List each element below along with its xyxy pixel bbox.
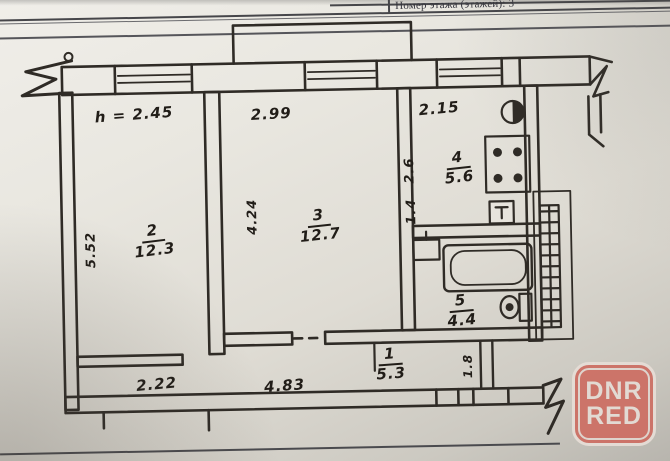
dnr-red-watermark: DNR RED <box>572 362 656 446</box>
bathtub-icon <box>443 244 532 292</box>
corridor-area: 5.3 <box>376 364 407 383</box>
bathroom-label: 5 4.4 <box>445 292 478 330</box>
dim-kitchen-depth: 2.6 <box>402 157 418 183</box>
dim-corridor-length: 4.83 <box>264 375 306 396</box>
water-heater-icon <box>489 201 513 223</box>
balcony-outline <box>233 22 412 64</box>
window-glazing <box>118 68 500 83</box>
wall-corridor-left <box>224 332 292 345</box>
room-3-label: 3 12.7 <box>297 206 342 246</box>
wall-room2-bottom <box>77 355 182 367</box>
dim-room3-width: 2.99 <box>250 104 292 124</box>
wall-break-left-icon <box>21 53 73 96</box>
dim-room2-width: 2.22 <box>135 373 177 395</box>
dim-kitchen-width: 2.15 <box>418 98 460 120</box>
door-opening-dashed <box>294 338 323 339</box>
sink-icon <box>501 101 523 123</box>
staircase-icon <box>533 191 573 340</box>
dim-niche-depth: 1.4 <box>404 198 420 224</box>
kitchen-area: 5.6 <box>444 167 475 187</box>
dim-room2-depth: 5.52 <box>84 232 100 268</box>
wall-break-bottom-icon <box>543 379 564 433</box>
kitchen-label: 4 5.6 <box>442 149 475 187</box>
exterior-wall-top <box>62 56 590 95</box>
watermark-line1: DNR <box>585 379 642 405</box>
scanned-floor-plan-photo: Номер этажа (этажей): 3 <box>0 0 670 461</box>
dim-entry-width: 1.8 <box>461 354 475 379</box>
washbasin-icon <box>413 232 440 261</box>
watermark-line2: RED <box>586 404 642 430</box>
dim-room3-depth: 4.24 <box>245 199 261 235</box>
stove-icon <box>485 136 530 193</box>
wall-room2-room3 <box>204 92 224 354</box>
exterior-wall-left <box>59 93 78 410</box>
wall-kitchen-bathroom <box>413 223 540 238</box>
floor-plan: h = 2.45 5.52 2 12.3 2.22 2.99 4.24 3 12… <box>11 3 650 461</box>
dimension-ticks <box>104 410 209 432</box>
wall-break-right-icon <box>588 56 614 146</box>
corridor-label: 1 5.3 <box>374 345 406 383</box>
wall-corridor-right <box>325 327 542 343</box>
bathroom-area: 4.4 <box>447 310 478 329</box>
room-2-label: 2 12.3 <box>131 221 176 261</box>
entry-door-jambs <box>480 340 493 388</box>
dnr-red-watermark-text: DNR RED <box>578 368 650 440</box>
